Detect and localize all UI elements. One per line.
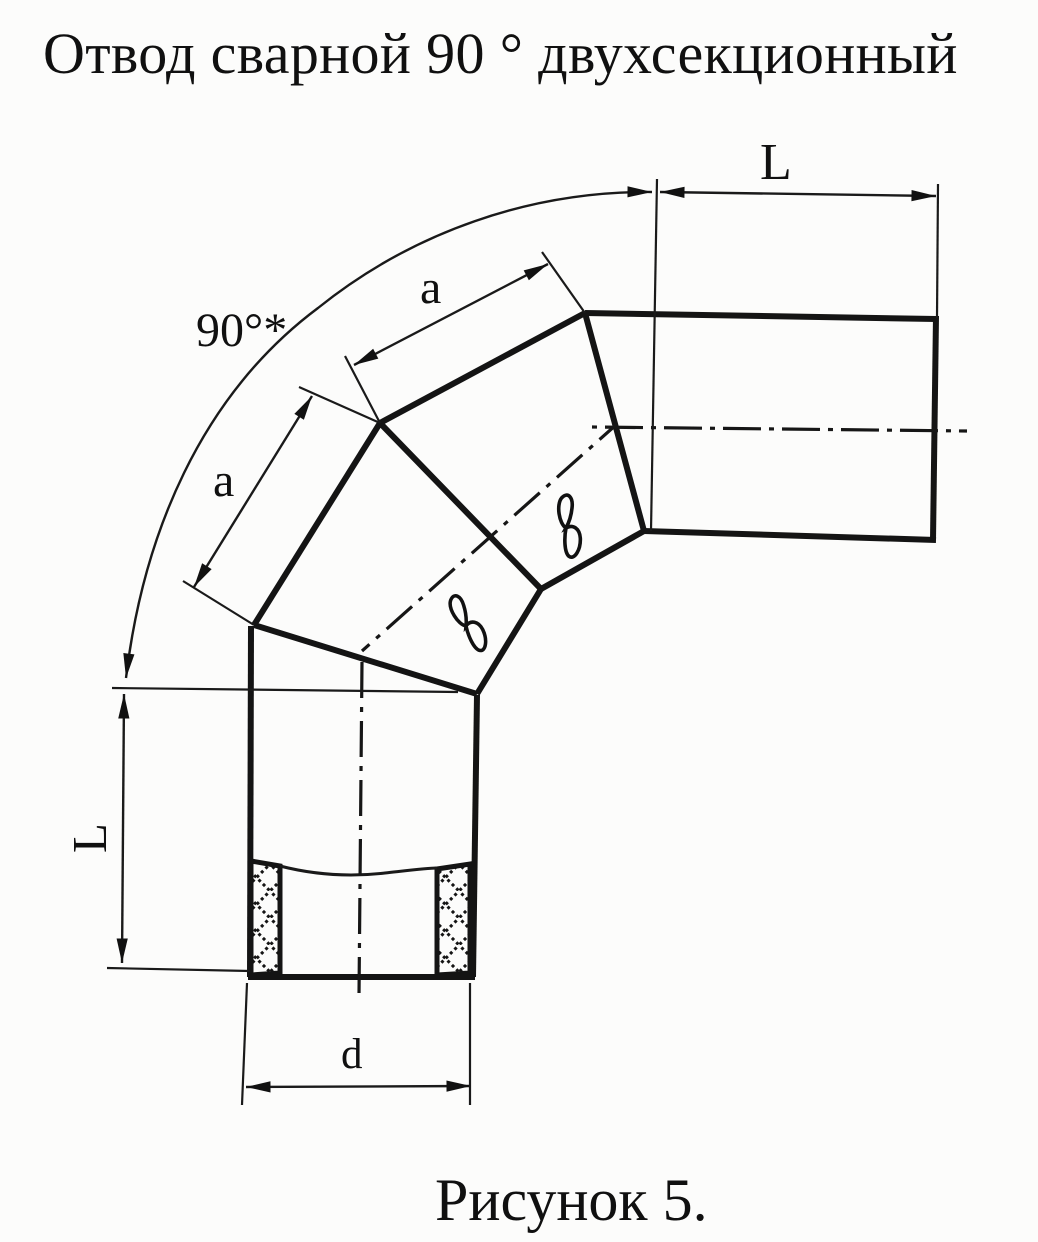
svg-text:Отвод сварной 90 ° двухсекцион: Отвод сварной 90 ° двухсекционный	[43, 21, 958, 86]
svg-text:90°*: 90°*	[196, 304, 287, 357]
svg-text:a: a	[420, 261, 441, 314]
svg-text:Рисунок 5.: Рисунок 5.	[435, 1167, 708, 1233]
svg-text:a: a	[213, 454, 234, 507]
svg-text:L: L	[62, 823, 117, 853]
svg-text:L: L	[760, 134, 792, 191]
svg-text:d: d	[341, 1031, 363, 1078]
